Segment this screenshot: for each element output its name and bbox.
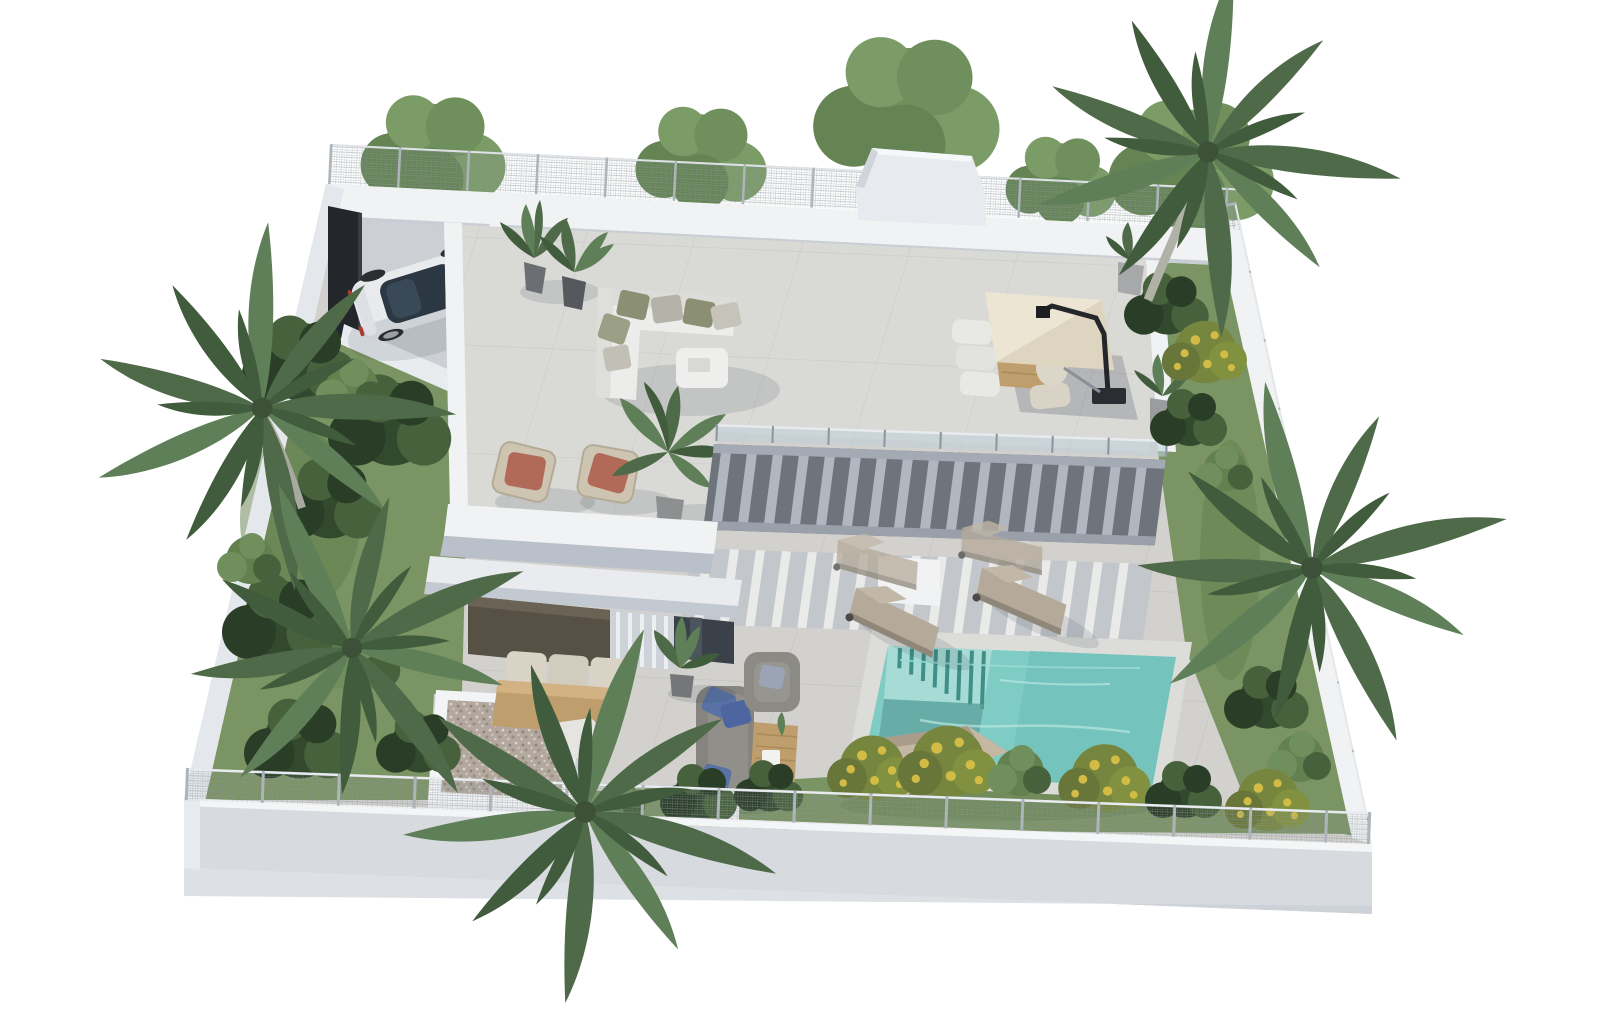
pergola <box>703 444 1166 545</box>
villa-3d-render <box>0 0 1600 1024</box>
screenshot-canvas <box>0 0 1600 1024</box>
dining-chair-front <box>1029 382 1071 410</box>
